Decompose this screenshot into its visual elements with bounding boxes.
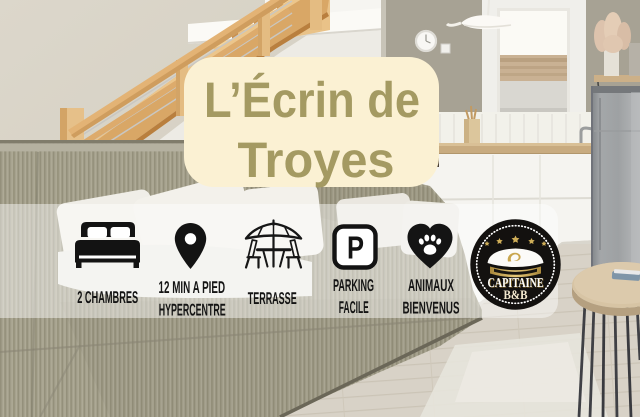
svg-text:Troyes: Troyes: [238, 132, 395, 188]
svg-text:12 MIN A PIED: 12 MIN A PIED: [159, 278, 226, 297]
svg-text:HYPERCENTRE: HYPERCENTRE: [159, 301, 226, 320]
svg-text:BIENVENUS: BIENVENUS: [403, 299, 460, 318]
svg-text:FACILE: FACILE: [339, 298, 369, 317]
svg-text:TERRASSE: TERRASSE: [248, 289, 297, 308]
svg-text:ANIMAUX: ANIMAUX: [408, 276, 454, 295]
svg-text:PARKING: PARKING: [333, 276, 374, 295]
svg-text:2 CHAMBRES: 2 CHAMBRES: [77, 288, 138, 307]
svg-text:P: P: [347, 230, 364, 266]
svg-text:B&B: B&B: [504, 287, 528, 302]
svg-text:L’Écrin de: L’Écrin de: [204, 72, 420, 128]
